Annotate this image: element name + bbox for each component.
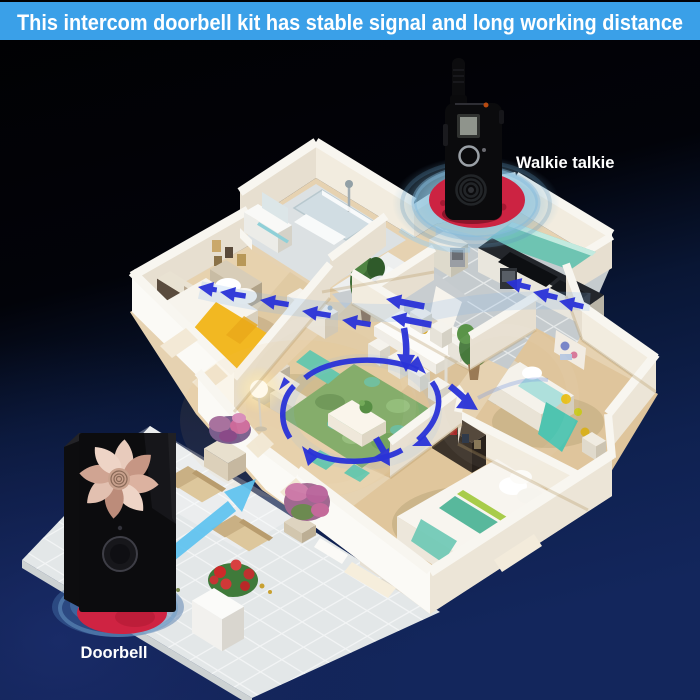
svg-text:Walkie talkie: Walkie talkie — [516, 154, 614, 172]
svg-text:Doorbell: Doorbell — [81, 644, 148, 662]
svg-text:This intercom doorbell kit has: This intercom doorbell kit has stable si… — [17, 10, 683, 35]
